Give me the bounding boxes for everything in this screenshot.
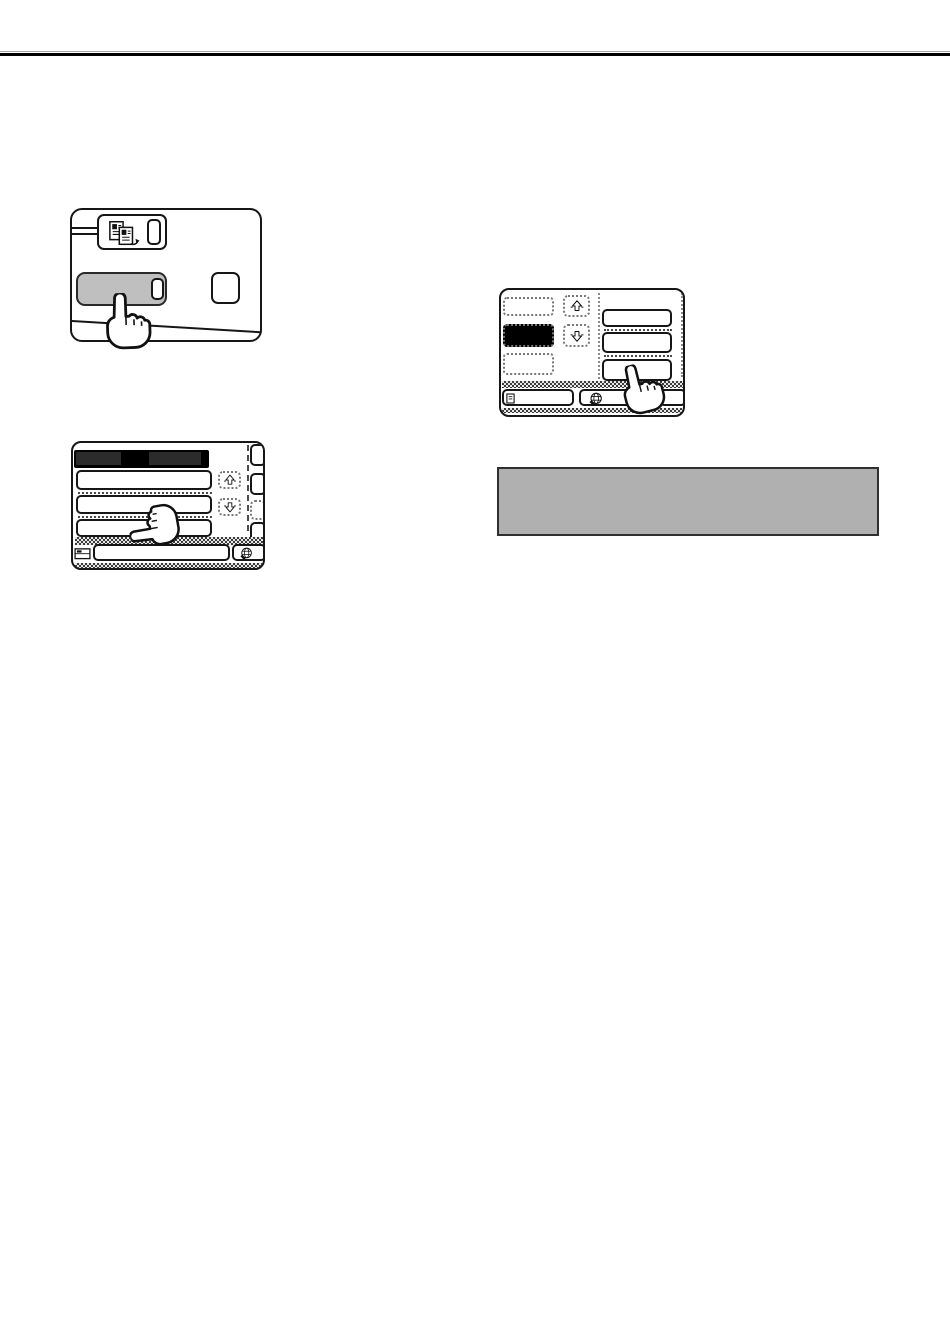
scroll-down-icon <box>222 500 237 514</box>
list-row-1 <box>76 470 212 490</box>
side-key-1 <box>250 444 265 466</box>
pressing-hand-cursor <box>94 292 154 354</box>
screen-edge-dotted-line <box>681 293 683 377</box>
top-rule-thick <box>0 53 950 56</box>
row-shadow-dots <box>604 355 672 357</box>
scroll-down-key <box>218 498 241 516</box>
tray-icon <box>74 547 91 560</box>
screen-edge-dashed-line <box>247 445 249 531</box>
indicator-slot <box>151 278 164 300</box>
scroll-up-icon <box>569 299 585 314</box>
item-key-2-selected <box>503 324 554 347</box>
manual-page <box>0 0 950 1344</box>
title-text-blob <box>149 452 201 465</box>
indicator-slot <box>147 219 161 245</box>
scroll-up-icon <box>222 473 237 487</box>
scroll-up-key <box>218 471 241 489</box>
minidoc-icon <box>506 393 515 404</box>
pressing-hand-cursor <box>125 499 187 560</box>
scroll-down-icon <box>569 328 585 343</box>
panel-divider-line <box>72 227 99 229</box>
dither-strip <box>75 563 265 568</box>
screen-title-bar <box>74 450 209 468</box>
bottom-left-key <box>502 389 574 406</box>
globe-icon <box>239 547 253 561</box>
item-key-3 <box>503 353 554 375</box>
option-key-2 <box>602 332 672 353</box>
scroll-down-key <box>563 324 590 347</box>
mode-key-group <box>97 214 167 250</box>
top-rule-thin <box>0 51 950 52</box>
scroll-up-key <box>563 295 590 317</box>
title-text-blob <box>76 452 121 465</box>
globe-icon <box>588 392 603 407</box>
note-box <box>497 467 879 536</box>
row-shadow-dots <box>604 329 672 331</box>
option-key-1 <box>602 309 672 327</box>
globe-key <box>232 544 265 561</box>
screen-divider-dotted-line <box>598 293 600 379</box>
function-key <box>211 272 240 304</box>
side-key-3 <box>250 500 265 520</box>
item-key-1 <box>503 297 554 316</box>
side-key-2 <box>250 473 265 495</box>
panel-divider-line <box>72 233 99 235</box>
row-shadow-dots <box>78 492 212 494</box>
document-copy-icon <box>108 220 140 247</box>
